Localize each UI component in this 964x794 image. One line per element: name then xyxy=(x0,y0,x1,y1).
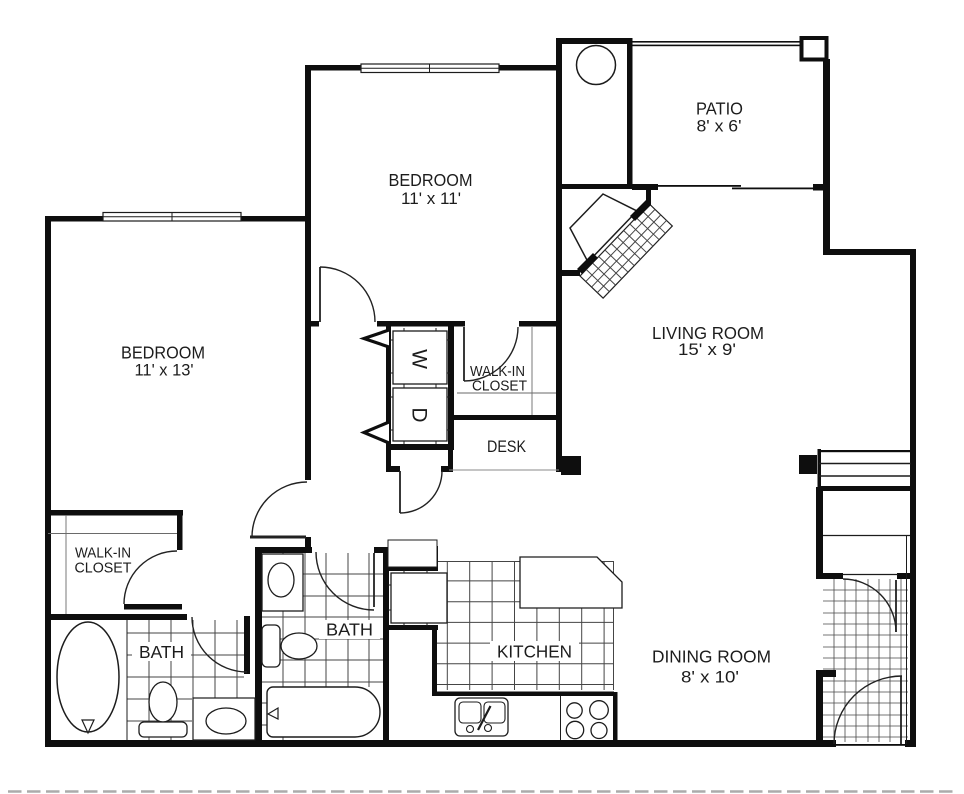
svg-text:15' x 9': 15' x 9' xyxy=(678,340,736,359)
svg-text:PATIO: PATIO xyxy=(696,99,743,119)
svg-text:CLOSET: CLOSET xyxy=(472,378,527,395)
svg-text:8' x 6': 8' x 6' xyxy=(697,117,742,136)
svg-text:CLOSET: CLOSET xyxy=(75,560,132,577)
svg-text:D: D xyxy=(408,407,431,422)
svg-text:KITCHEN: KITCHEN xyxy=(497,642,572,662)
svg-text:DINING ROOM: DINING ROOM xyxy=(652,647,771,667)
svg-text:W: W xyxy=(408,349,431,369)
svg-text:11' x 11': 11' x 11' xyxy=(401,189,461,208)
svg-text:8' x 10': 8' x 10' xyxy=(681,668,739,687)
svg-text:BATH: BATH xyxy=(139,642,184,662)
svg-text:11' x 13': 11' x 13' xyxy=(135,361,194,380)
svg-text:BEDROOM: BEDROOM xyxy=(389,170,473,190)
svg-text:DESK: DESK xyxy=(487,438,526,456)
svg-text:BATH: BATH xyxy=(326,620,373,640)
svg-text:BEDROOM: BEDROOM xyxy=(121,343,205,363)
